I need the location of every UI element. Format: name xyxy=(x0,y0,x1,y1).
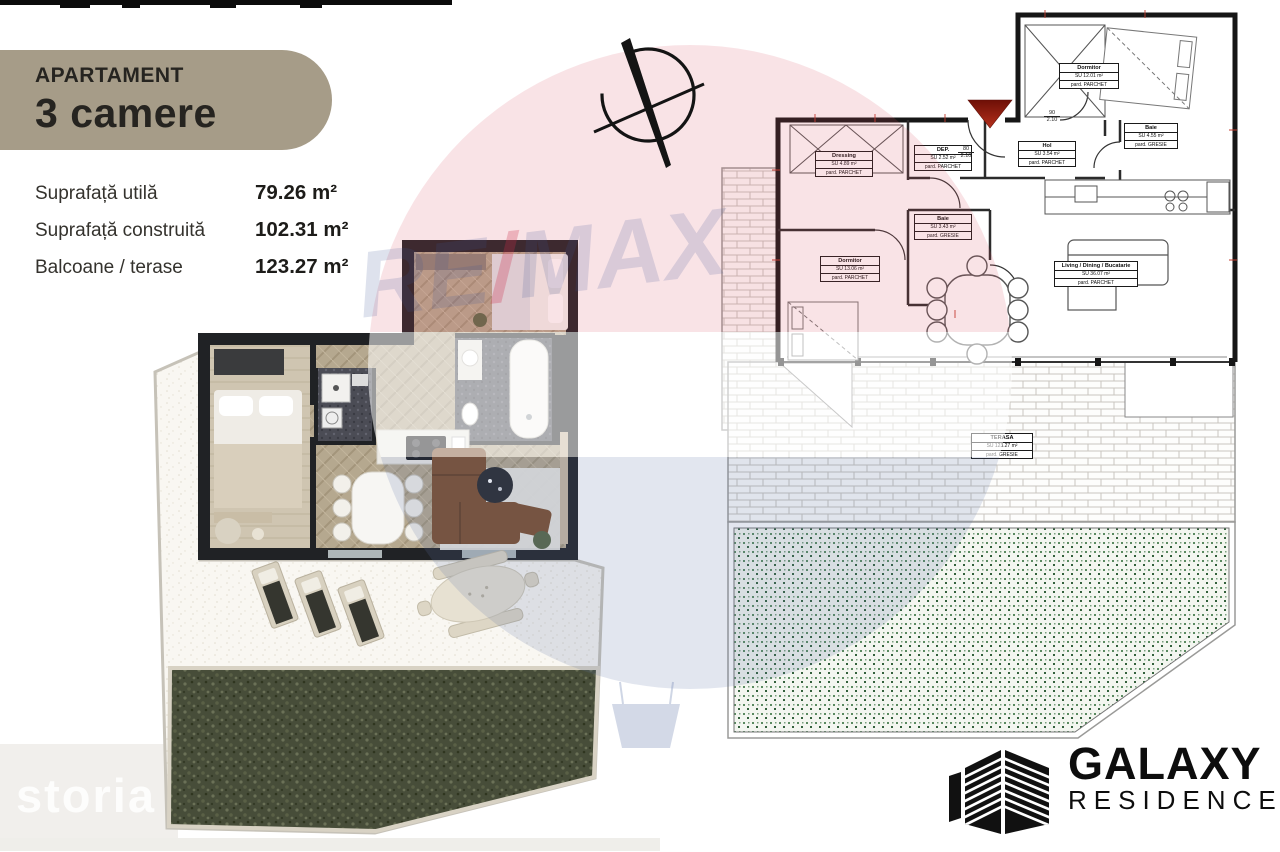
room-label-dormitor-2: Dormitor SU 12.01 m² pard. PARCHET xyxy=(1059,63,1119,89)
small-bathroom xyxy=(314,368,376,445)
room-label-dressing: Dressing SU 4.89 m² pard. PARCHET xyxy=(815,151,873,177)
room-label-hol: Hol SU 3.54 m² pard. PARCHET xyxy=(1018,141,1076,167)
garden xyxy=(169,668,598,831)
main-bathroom xyxy=(455,333,566,445)
room-label-baie-2: Baie SU 4.55 m² pard. GRESIE xyxy=(1124,123,1178,149)
room-label-baie-1: Baie SU 3.43 m² pard. GRESIE xyxy=(914,214,972,240)
room-label-terasa: TERASA SU 123.27 m² pard. GRESIE xyxy=(971,433,1033,459)
apartment-badge-label: APARTAMENT xyxy=(35,64,332,88)
room-label-living: Living / Dining / Bucatarie SU 36.07 m² … xyxy=(1054,261,1138,287)
spec-value: 79.26 m² xyxy=(255,181,337,205)
north-compass-icon xyxy=(585,22,715,177)
scan-artifact-tick xyxy=(300,5,322,8)
dining-set xyxy=(333,472,423,544)
door-size-tag: 80 2.10 xyxy=(958,146,974,159)
garden-area xyxy=(728,522,1235,738)
spec-row: Suprafață construită 102.31 m² xyxy=(35,220,455,257)
door-size-tag: 90 2.10 xyxy=(1044,110,1060,123)
brand-wordmark: GALAXY RESIDENCE xyxy=(1068,741,1280,816)
building-icon xyxy=(948,738,1060,838)
scan-artifact-tick xyxy=(60,5,90,8)
scan-artifact-tick xyxy=(210,5,236,8)
area-specs: Suprafață utilă 79.26 m² Suprafață const… xyxy=(35,183,455,294)
spec-label: Suprafață utilă xyxy=(35,183,158,205)
terrace-door-glass xyxy=(328,550,382,558)
covered-terrace-right xyxy=(1125,355,1233,417)
spec-value: 123.27 m² xyxy=(255,255,348,279)
spec-label: Suprafață construită xyxy=(35,220,205,242)
scan-artifact-tick xyxy=(122,5,140,8)
floor-plan-3d xyxy=(140,232,660,852)
spec-value: 102.31 m² xyxy=(255,218,348,242)
apartment-badge: APARTAMENT 3 camere xyxy=(0,50,332,150)
room-label-dormitor-1: Dormitor SU 13.06 m² pard. PARCHET xyxy=(820,256,880,282)
spec-row: Balcoane / terase 123.27 m² xyxy=(35,257,455,294)
brand-subtitle: RESIDENCE xyxy=(1068,786,1280,816)
kitchen-counter xyxy=(1045,180,1230,214)
floor-plan-technical xyxy=(715,10,1240,745)
apartment-badge-value: 3 camere xyxy=(35,90,332,137)
spec-label: Balcoane / terase xyxy=(35,257,183,279)
brand-title: GALAXY xyxy=(1068,741,1280,786)
master-bedroom xyxy=(210,345,316,548)
spec-row: Suprafață utilă 79.26 m² xyxy=(35,183,455,220)
